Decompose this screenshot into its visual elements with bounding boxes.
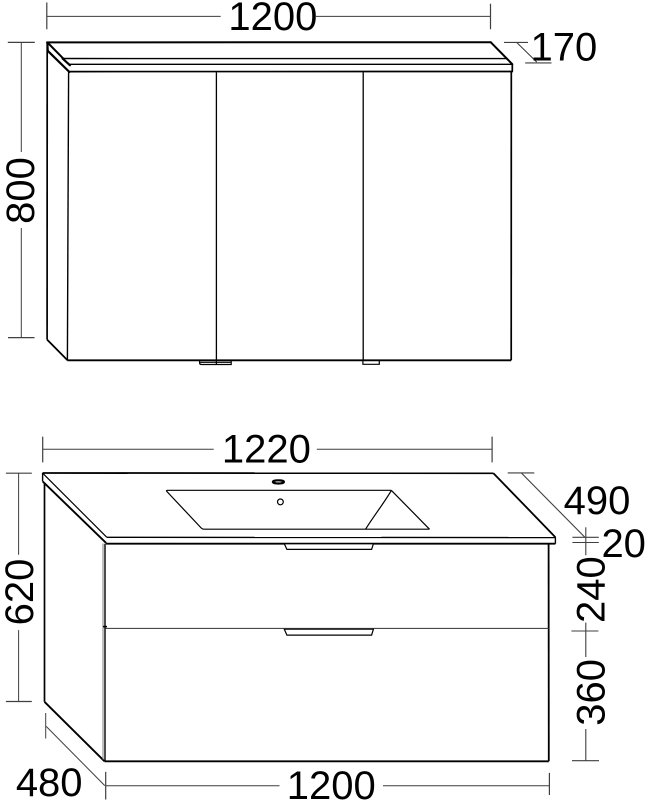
svg-text:170: 170 xyxy=(531,26,598,70)
svg-text:1200: 1200 xyxy=(287,764,376,800)
svg-text:1200: 1200 xyxy=(228,0,317,39)
svg-text:620: 620 xyxy=(0,559,42,626)
svg-text:490: 490 xyxy=(564,479,631,523)
svg-text:800: 800 xyxy=(0,157,43,224)
svg-text:240: 240 xyxy=(569,556,613,623)
svg-text:1220: 1220 xyxy=(222,428,311,472)
svg-text:360: 360 xyxy=(569,659,613,726)
svg-text:480: 480 xyxy=(16,761,83,800)
